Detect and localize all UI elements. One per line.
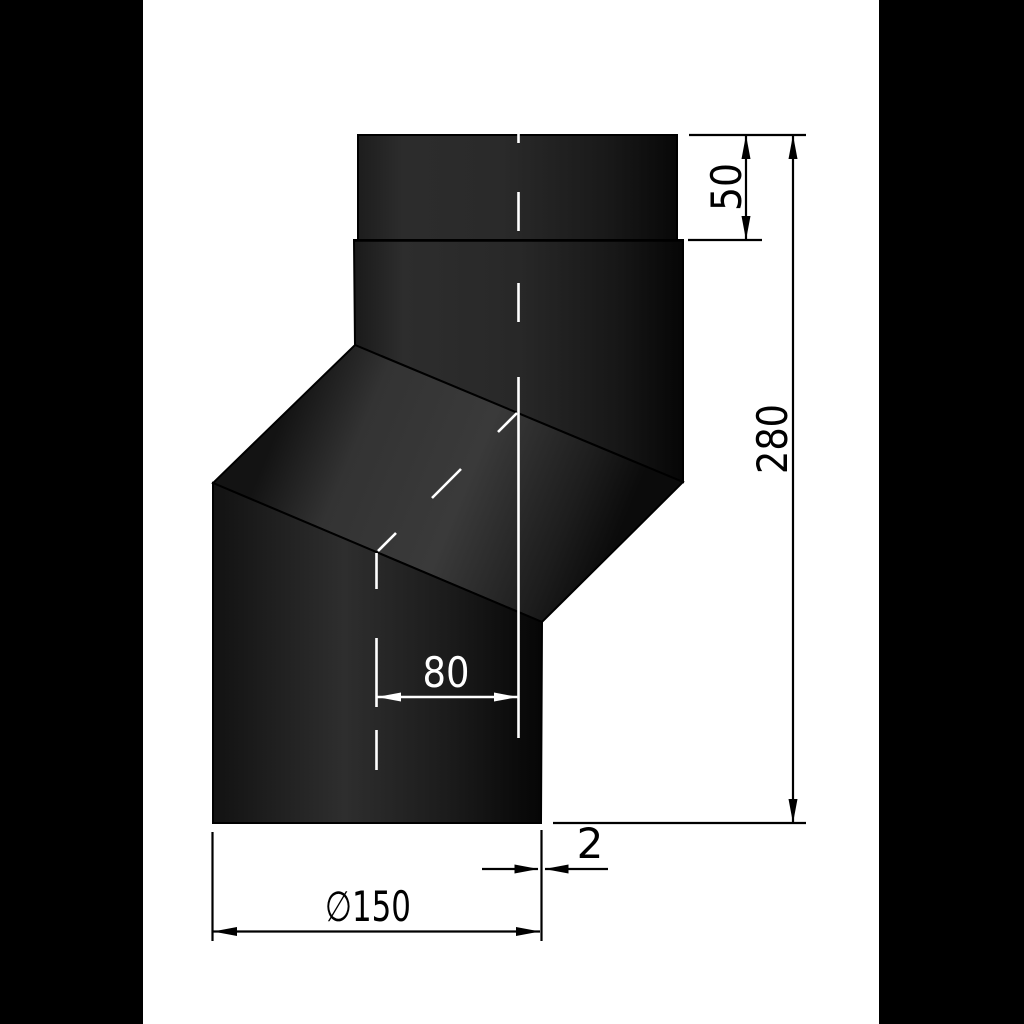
dim-2-label: 2 bbox=[577, 819, 604, 868]
dim-50-label: 50 bbox=[702, 163, 751, 211]
dim-280-label: 280 bbox=[748, 404, 797, 474]
technical-drawing: 80 50 280 2 bbox=[0, 0, 1024, 1024]
dim-150-label: ∅150 bbox=[325, 882, 411, 931]
dim-80-label: 80 bbox=[423, 648, 470, 697]
screenshot-stage: 80 50 280 2 bbox=[0, 0, 1024, 1024]
